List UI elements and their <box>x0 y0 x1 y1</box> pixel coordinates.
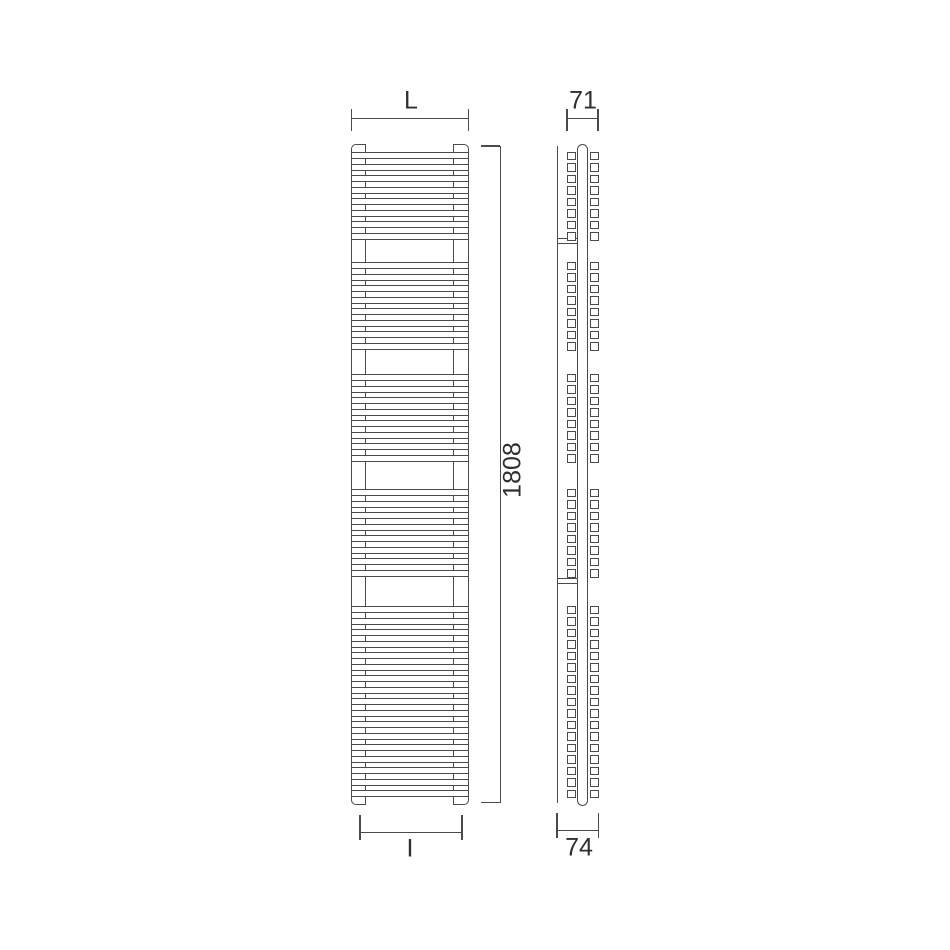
front-bar <box>351 629 469 636</box>
front-bar <box>351 308 469 315</box>
front-bar <box>351 221 469 228</box>
bar-section-left <box>567 721 577 730</box>
bar-section-left <box>567 663 577 672</box>
bar-section-right <box>590 535 600 544</box>
bar-section-right <box>590 262 600 271</box>
bar-section-left <box>567 535 577 544</box>
bar-section-left <box>567 790 577 799</box>
bar-section-right <box>590 232 600 241</box>
front-bar <box>351 198 469 205</box>
interaxis-dim-label: I <box>407 837 414 862</box>
bar-section-left <box>567 163 577 172</box>
bar-section-left <box>567 617 577 626</box>
bar-section-right <box>590 732 600 741</box>
front-bar <box>351 767 469 774</box>
front-bar <box>351 386 469 393</box>
dim-line <box>352 118 469 119</box>
depth-top-dim-label: 71 <box>569 89 597 114</box>
bar-section-left <box>567 262 577 271</box>
bar-section-left <box>567 296 577 305</box>
bar-section-right <box>590 408 600 417</box>
bar-section-left <box>567 767 577 776</box>
bar-section-left <box>567 186 577 195</box>
front-bar <box>351 756 469 763</box>
bar-section-left <box>567 152 577 161</box>
front-bar <box>351 443 469 450</box>
bar-section-left <box>567 640 577 649</box>
bar-section-right <box>590 186 600 195</box>
front-bar <box>351 175 469 182</box>
bar-section-right <box>590 523 600 532</box>
bar-section-left <box>567 512 577 521</box>
bar-section-right <box>590 431 600 440</box>
bar-section-left <box>567 558 577 567</box>
bar-section-right <box>590 767 600 776</box>
bar-section-right <box>590 397 600 406</box>
bar-section-right <box>590 198 600 207</box>
bar-section-right <box>590 331 600 340</box>
bar-section-left <box>567 686 577 695</box>
bar-section-right <box>590 420 600 429</box>
bar-section-right <box>590 285 600 294</box>
bar-section-right <box>590 443 600 452</box>
wall-bracket <box>557 578 579 584</box>
front-bar <box>351 152 469 159</box>
front-bar <box>351 606 469 613</box>
bar-section-right <box>590 152 600 161</box>
bar-section-right <box>590 209 600 218</box>
bar-section-left <box>567 397 577 406</box>
front-bar <box>351 710 469 717</box>
bar-section-right <box>590 709 600 718</box>
dim-line <box>500 146 501 803</box>
dim-line <box>360 832 462 833</box>
front-bar <box>351 570 469 577</box>
dim-serif <box>481 145 500 146</box>
front-bar <box>351 374 469 381</box>
bar-section-left <box>567 273 577 282</box>
bar-section-left <box>567 331 577 340</box>
front-bar <box>351 664 469 671</box>
bar-section-left <box>567 778 577 787</box>
bar-section-right <box>590 755 600 764</box>
front-bar <box>351 262 469 269</box>
bar-section-left <box>567 285 577 294</box>
bar-section-left <box>567 431 577 440</box>
front-bar <box>351 721 469 728</box>
bar-section-left <box>567 175 577 184</box>
dim-line <box>567 118 598 119</box>
bar-section-right <box>590 512 600 521</box>
bar-section-left <box>567 629 577 638</box>
bar-section-left <box>567 523 577 532</box>
bar-section-right <box>590 546 600 555</box>
front-bar <box>351 687 469 694</box>
bar-section-left <box>567 385 577 394</box>
bar-section-right <box>590 454 600 463</box>
dim-tick <box>556 813 557 838</box>
bar-section-left <box>567 500 577 509</box>
front-bar <box>351 779 469 786</box>
bar-section-left <box>567 675 577 684</box>
front-bar <box>351 285 469 292</box>
bar-section-right <box>590 686 600 695</box>
bar-section-left <box>567 221 577 230</box>
bar-section-left <box>567 454 577 463</box>
front-bar <box>351 547 469 554</box>
front-bar <box>351 274 469 281</box>
bar-section-left <box>567 546 577 555</box>
bar-section-right <box>590 163 600 172</box>
bar-section-right <box>590 175 600 184</box>
bar-section-left <box>567 755 577 764</box>
bar-section-right <box>590 663 600 672</box>
front-bar <box>351 455 469 462</box>
front-bar <box>351 164 469 171</box>
front-bar <box>351 331 469 338</box>
depth-bottom-dim-label: 74 <box>565 836 593 861</box>
bar-section-left <box>567 232 577 241</box>
bar-section-right <box>590 778 600 787</box>
bar-section-right <box>590 790 600 799</box>
bar-section-left <box>567 569 577 578</box>
front-bar <box>351 397 469 404</box>
dim-tick <box>359 815 360 840</box>
bar-section-right <box>590 342 600 351</box>
dim-tick <box>468 109 469 131</box>
bar-section-right <box>590 606 600 615</box>
bar-section-right <box>590 652 600 661</box>
bar-section-left <box>567 308 577 317</box>
bar-section-left <box>567 698 577 707</box>
dim-serif <box>481 802 500 803</box>
front-bar <box>351 210 469 217</box>
front-bar <box>351 744 469 751</box>
bar-section-right <box>590 221 600 230</box>
front-bar <box>351 524 469 531</box>
bar-section-left <box>567 744 577 753</box>
front-bar <box>351 535 469 542</box>
dim-tick <box>461 815 462 840</box>
bar-section-left <box>567 652 577 661</box>
bar-section-left <box>567 489 577 498</box>
bar-section-right <box>590 308 600 317</box>
front-bar <box>351 409 469 416</box>
dim-tick <box>598 813 599 838</box>
front-bar <box>351 618 469 625</box>
bar-section-right <box>590 319 600 328</box>
bar-section-right <box>590 296 600 305</box>
wall-line <box>557 146 558 803</box>
front-bar <box>351 790 469 797</box>
bar-section-right <box>590 629 600 638</box>
front-bar <box>351 432 469 439</box>
front-bar <box>351 675 469 682</box>
bar-section-left <box>567 342 577 351</box>
bar-section-right <box>590 675 600 684</box>
bar-section-right <box>590 273 600 282</box>
front-bar <box>351 733 469 740</box>
dim-tick <box>351 109 352 131</box>
bar-section-left <box>567 319 577 328</box>
front-bar <box>351 320 469 327</box>
collector-tube <box>577 144 589 806</box>
front-bar <box>351 698 469 705</box>
bar-section-right <box>590 558 600 567</box>
bar-section-left <box>567 209 577 218</box>
bar-section-left <box>567 709 577 718</box>
front-bar <box>351 501 469 508</box>
front-bar <box>351 420 469 427</box>
radiator-technical-drawing: L 71 1808 I 74 <box>0 0 950 950</box>
right-collector <box>453 144 469 805</box>
front-bar <box>351 187 469 194</box>
front-bar <box>351 233 469 240</box>
bar-section-left <box>567 420 577 429</box>
bar-section-left <box>567 443 577 452</box>
bar-section-right <box>590 617 600 626</box>
dim-tick <box>566 109 567 131</box>
bar-section-right <box>590 698 600 707</box>
bar-section-right <box>590 489 600 498</box>
front-bar <box>351 489 469 496</box>
bar-section-right <box>590 385 600 394</box>
dim-line <box>557 830 599 831</box>
front-bar <box>351 297 469 304</box>
front-bar <box>351 512 469 519</box>
dim-tick <box>597 109 598 131</box>
front-bar <box>351 558 469 565</box>
front-bar <box>351 641 469 648</box>
left-collector <box>351 144 366 805</box>
bar-section-right <box>590 721 600 730</box>
bar-section-left <box>567 606 577 615</box>
front-bar <box>351 343 469 350</box>
width-dim-label: L <box>404 89 418 114</box>
bar-section-right <box>590 500 600 509</box>
bar-section-left <box>567 374 577 383</box>
bar-section-left <box>567 198 577 207</box>
bar-section-left <box>567 408 577 417</box>
bar-section-right <box>590 569 600 578</box>
bar-section-left <box>567 732 577 741</box>
height-dim-label: 1808 <box>501 442 526 498</box>
bar-section-right <box>590 744 600 753</box>
front-bar <box>351 652 469 659</box>
bar-section-right <box>590 374 600 383</box>
bar-section-right <box>590 640 600 649</box>
